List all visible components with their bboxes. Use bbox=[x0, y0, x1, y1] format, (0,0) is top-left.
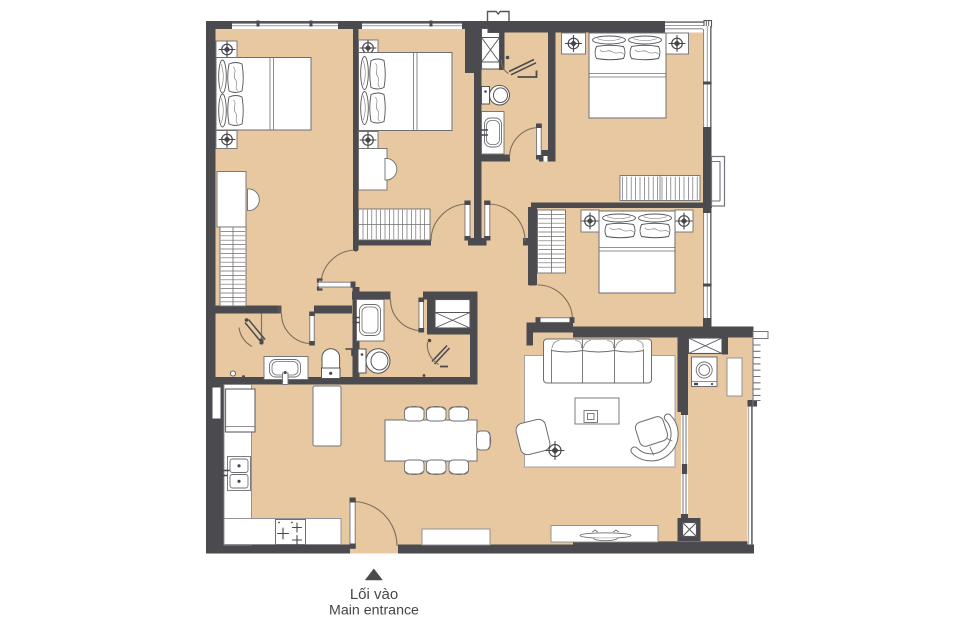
svg-text:Lối vào: Lối vào bbox=[350, 586, 398, 603]
svg-text:Main entrance: Main entrance bbox=[329, 603, 419, 619]
